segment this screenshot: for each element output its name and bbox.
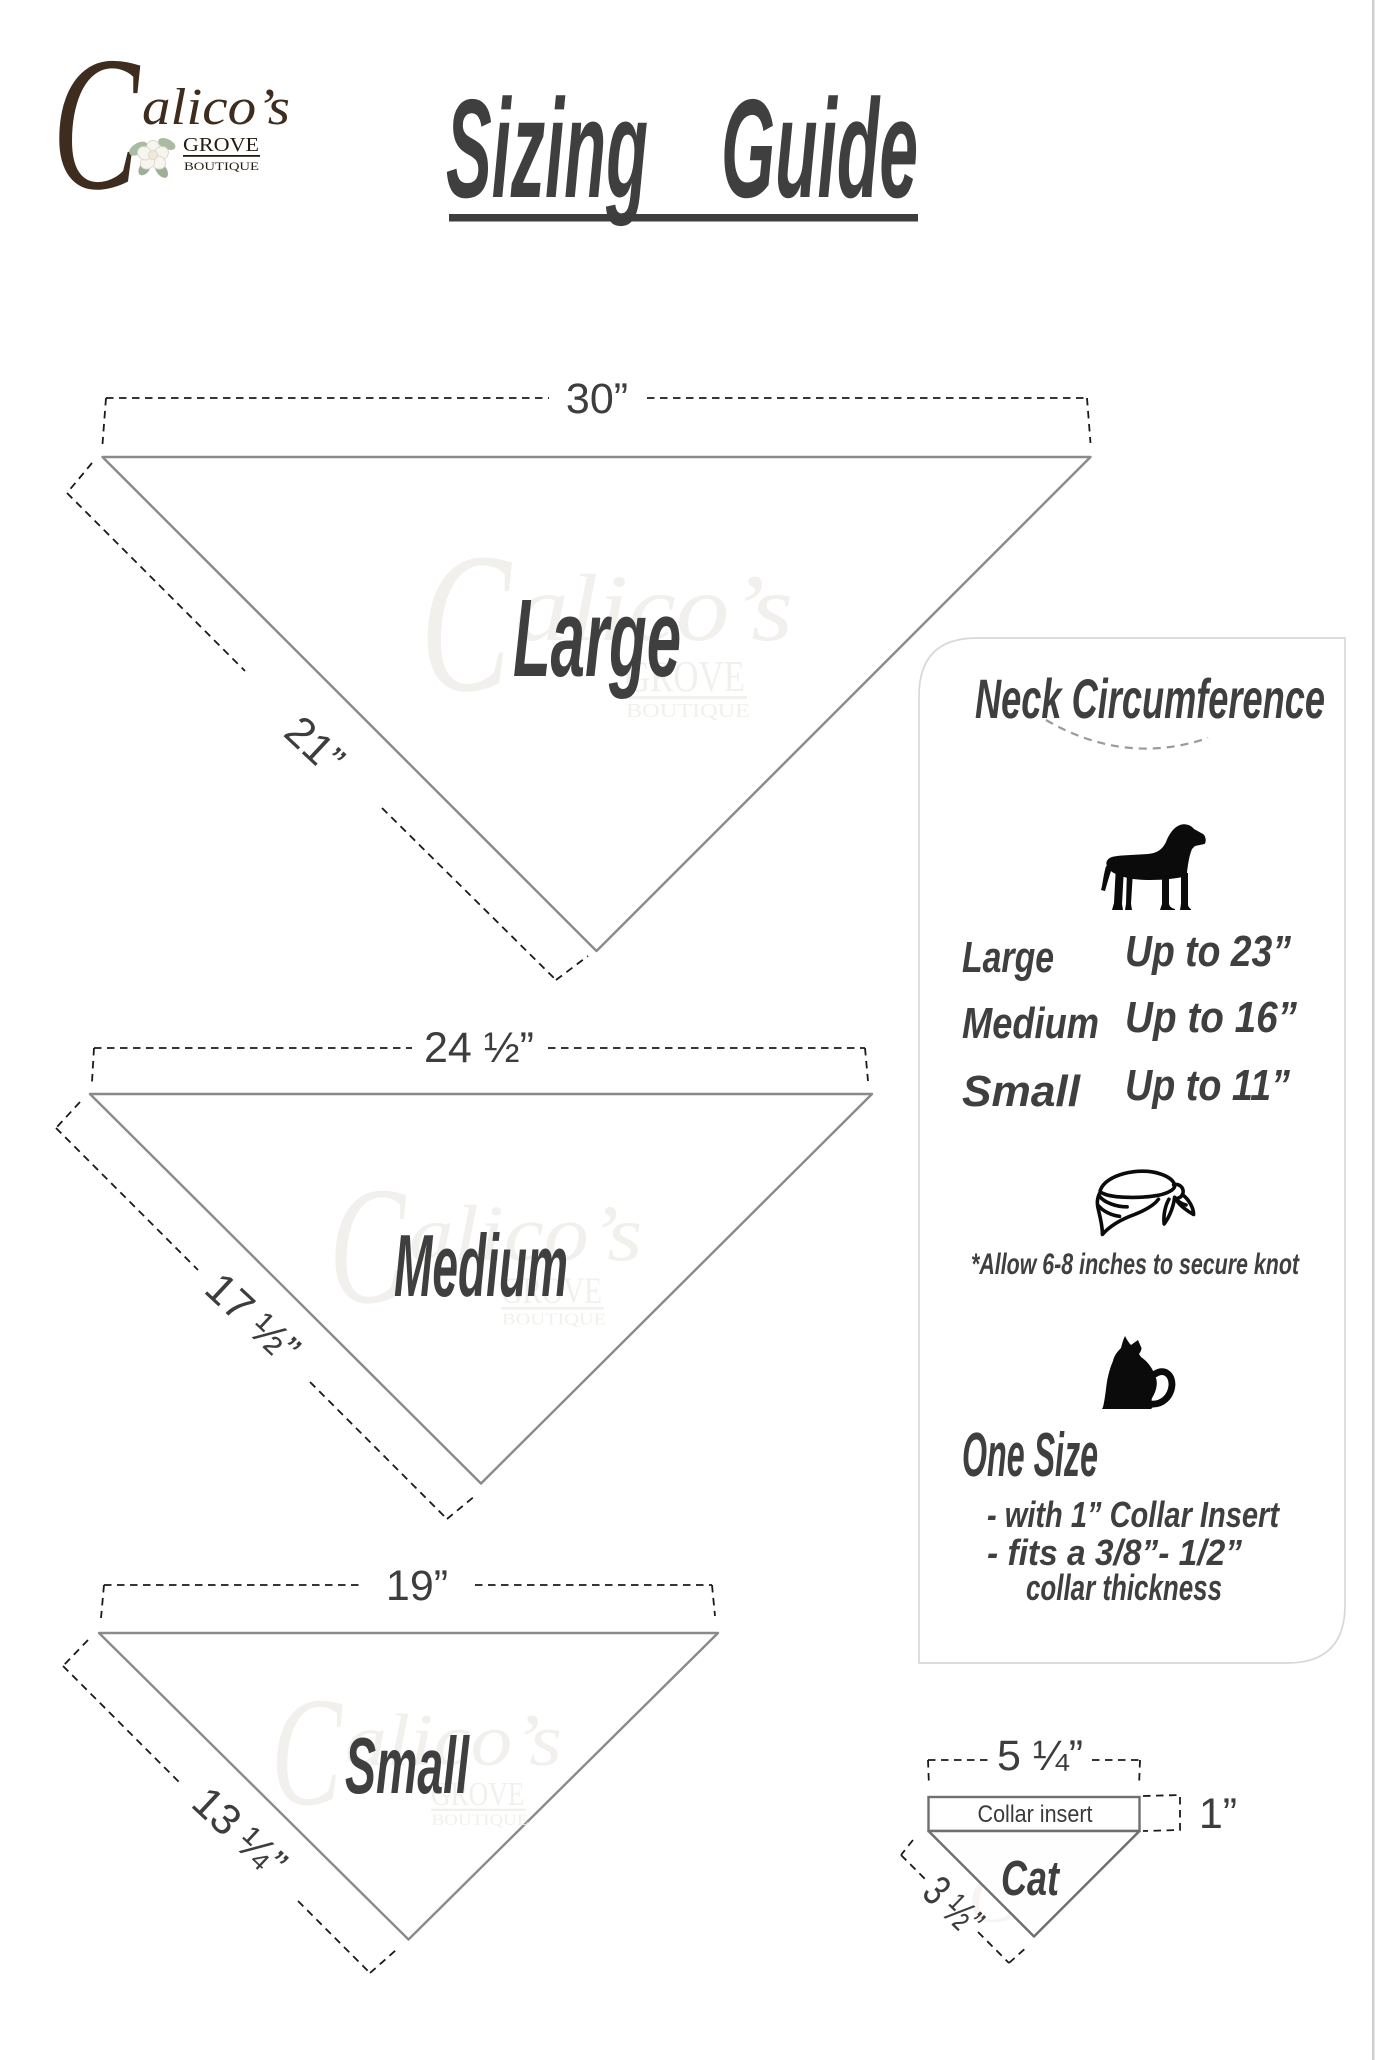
svg-text:Cat: Cat — [1001, 1852, 1060, 1906]
svg-text:Sizing: Sizing — [446, 71, 648, 228]
svg-text:One Size: One Size — [962, 1421, 1098, 1490]
svg-text:Guide: Guide — [721, 71, 918, 228]
svg-text:Medium: Medium — [394, 1216, 568, 1315]
svg-text:*Allow 6-8 inches to secure kn: *Allow 6-8 inches to secure knot — [971, 1248, 1300, 1281]
svg-text:Up to 11”: Up to 11” — [1125, 1061, 1290, 1110]
svg-text:- with 1” Collar Insert: - with 1” Collar Insert — [987, 1494, 1281, 1535]
svg-text:Large: Large — [962, 933, 1054, 982]
svg-text:24 ½”: 24 ½” — [424, 1024, 534, 1072]
svg-text:alico’s: alico’s — [142, 79, 290, 136]
svg-text:30”: 30” — [566, 375, 628, 423]
svg-text:Medium: Medium — [962, 999, 1099, 1048]
svg-text:Up to 16”: Up to 16” — [1125, 993, 1297, 1042]
svg-text:Collar insert: Collar insert — [978, 1801, 1093, 1828]
svg-text:BOUTIQUE: BOUTIQUE — [184, 159, 259, 173]
svg-text:Small: Small — [345, 1721, 470, 1810]
svg-text:collar thickness: collar thickness — [1026, 1567, 1222, 1608]
svg-text:Up to 23”: Up to 23” — [1125, 927, 1291, 976]
svg-text:Large: Large — [513, 577, 681, 700]
svg-text:5 ¼”: 5 ¼” — [997, 1732, 1083, 1780]
svg-text:1”: 1” — [1199, 1790, 1237, 1838]
svg-text:Neck Circumference: Neck Circumference — [975, 667, 1325, 730]
svg-text:19”: 19” — [386, 1562, 448, 1610]
svg-text:Small: Small — [962, 1067, 1081, 1116]
svg-text:C: C — [52, 17, 141, 230]
svg-text:GROVE: GROVE — [183, 134, 259, 156]
